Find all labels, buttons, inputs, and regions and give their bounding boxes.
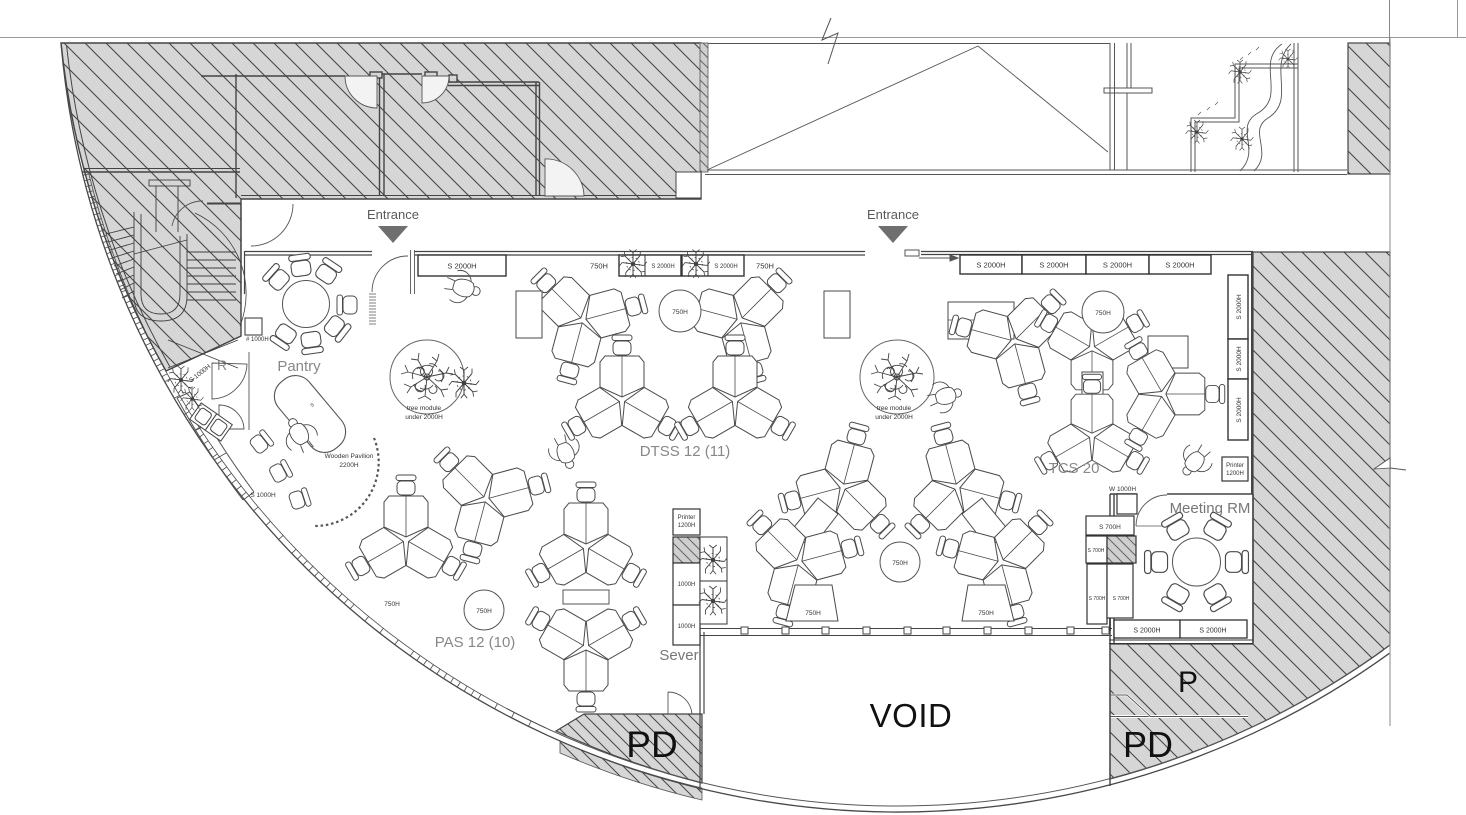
svg-text:1200H: 1200H bbox=[1226, 471, 1244, 477]
svg-text:S 2000H: S 2000H bbox=[1133, 628, 1160, 635]
svg-text:750H: 750H bbox=[672, 309, 688, 316]
svg-text:S 2000H: S 2000H bbox=[1165, 261, 1194, 270]
svg-text:W 1000H: W 1000H bbox=[1109, 486, 1136, 493]
svg-text:1200H: 1200H bbox=[678, 523, 696, 529]
svg-text:S 2000H: S 2000H bbox=[447, 262, 476, 271]
svg-text:1000H: 1000H bbox=[678, 624, 696, 630]
svg-text:S 2000H: S 2000H bbox=[1103, 261, 1132, 270]
svg-text:S 2000H: S 2000H bbox=[1236, 346, 1243, 372]
svg-text:under 2000H: under 2000H bbox=[405, 414, 443, 421]
svg-text:750H: 750H bbox=[978, 610, 994, 617]
svg-text:Entrance: Entrance bbox=[867, 207, 919, 222]
svg-text:S 2000H: S 2000H bbox=[1039, 261, 1068, 270]
svg-text:750H: 750H bbox=[590, 262, 608, 271]
svg-text:Printer: Printer bbox=[1226, 463, 1244, 469]
svg-text:S 2000H: S 2000H bbox=[1236, 397, 1243, 423]
svg-text:PAS 12 (10): PAS 12 (10) bbox=[435, 634, 516, 651]
svg-text:P: P bbox=[1178, 666, 1198, 699]
svg-text:1000H: 1000H bbox=[678, 582, 696, 588]
svg-text:R: R bbox=[217, 357, 227, 373]
svg-text:2200H: 2200H bbox=[339, 462, 358, 469]
svg-text:750H: 750H bbox=[1095, 310, 1111, 317]
svg-text:750H: 750H bbox=[805, 610, 821, 617]
svg-text:PD: PD bbox=[626, 724, 677, 765]
svg-text:Sever: Sever bbox=[659, 647, 698, 664]
svg-text:S 700H: S 700H bbox=[1113, 596, 1130, 602]
svg-text:tree module: tree module bbox=[407, 405, 442, 412]
svg-text:750H: 750H bbox=[384, 601, 400, 608]
svg-text:S 2000H: S 2000H bbox=[976, 261, 1005, 270]
svg-text:S 700H: S 700H bbox=[1099, 524, 1121, 531]
svg-text:S 700H: S 700H bbox=[1088, 548, 1105, 554]
svg-text:S 2000H: S 2000H bbox=[1199, 628, 1226, 635]
svg-text:S 700H: S 700H bbox=[1089, 596, 1106, 602]
svg-text:750H: 750H bbox=[756, 262, 774, 271]
svg-text:TCS 20: TCS 20 bbox=[1049, 460, 1100, 477]
svg-text:S 2000H: S 2000H bbox=[714, 264, 737, 270]
svg-text:# 1000H: # 1000H bbox=[246, 337, 269, 343]
svg-text:PD: PD bbox=[1123, 724, 1173, 765]
svg-text:DTSS 12 (11): DTSS 12 (11) bbox=[640, 443, 731, 460]
svg-text:Wooden Pavilion: Wooden Pavilion bbox=[325, 453, 374, 460]
svg-text:tree module: tree module bbox=[877, 405, 912, 412]
svg-text:under 2000H: under 2000H bbox=[875, 414, 913, 421]
svg-text:Entrance: Entrance bbox=[367, 207, 419, 222]
svg-text:S 2000H: S 2000H bbox=[1236, 294, 1243, 320]
svg-text:Printer: Printer bbox=[678, 515, 696, 521]
svg-text:S 2000H: S 2000H bbox=[651, 264, 674, 270]
svg-text:750H: 750H bbox=[892, 560, 908, 567]
svg-text:VOID: VOID bbox=[870, 697, 953, 734]
svg-text:S 1000H: S 1000H bbox=[250, 492, 276, 499]
svg-text:Pantry: Pantry bbox=[277, 358, 321, 375]
svg-text:750H: 750H bbox=[476, 608, 492, 615]
